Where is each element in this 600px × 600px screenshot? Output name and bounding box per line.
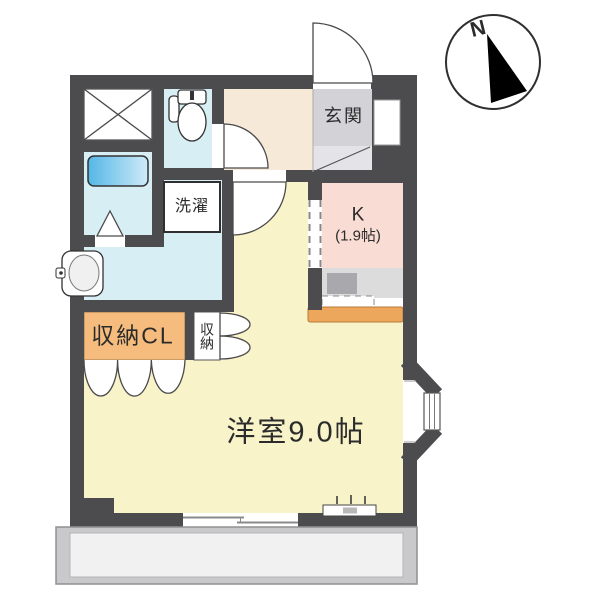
entrance-door-swing (313, 23, 373, 83)
closet-cl-label: 収納CL (91, 325, 174, 348)
bathtub (88, 156, 148, 186)
closet-folding-doors (84, 360, 185, 396)
kitchen-label: K (352, 206, 365, 225)
main-room-label: 洋室9.0帖 (226, 419, 365, 448)
kitchen-open-passage (308, 200, 322, 268)
balcony (56, 527, 417, 584)
bathroom-door-opening (95, 235, 125, 247)
shaft-box (84, 89, 152, 140)
washroom-floor (84, 247, 222, 300)
floor-plan-drawing (0, 0, 600, 600)
genkan-label: 玄関 (324, 107, 364, 125)
corner-pillar (84, 498, 114, 513)
kitchen-floor (322, 183, 403, 270)
kitchen-sink (327, 273, 357, 294)
toilet-door-opening (212, 124, 224, 168)
compass (446, 15, 540, 109)
storage-label: 収納 (200, 322, 214, 350)
washbasin-icon (56, 251, 103, 296)
bay-window-opening (403, 380, 417, 443)
floor-plan: 玄関 K (1.9帖) 洗濯 収納CL 収納 洋室9.0帖 N (0, 0, 600, 600)
kitchen-size-label: (1.9帖) (335, 229, 381, 244)
shoe-cabinet (374, 100, 400, 145)
laundry-label: 洗濯 (175, 199, 209, 215)
kitchen-counter (308, 268, 403, 322)
main-room-door-opening (233, 170, 286, 182)
kitchen-counter-bar (308, 307, 403, 322)
